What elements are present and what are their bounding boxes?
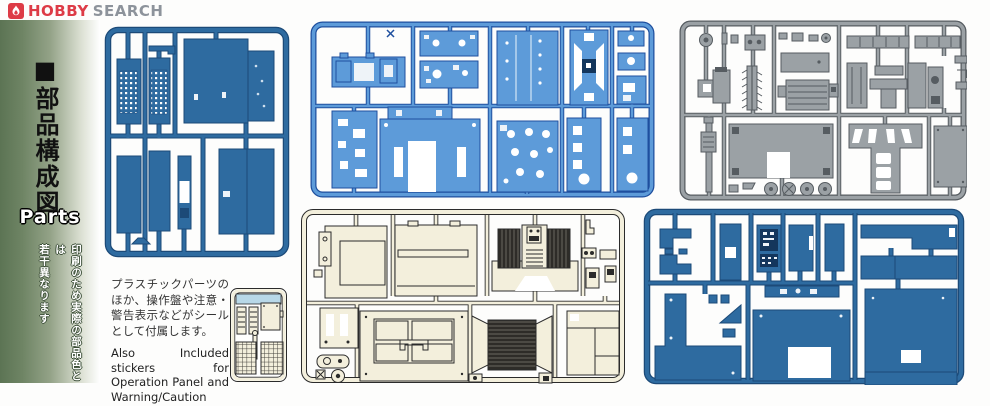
part-roof-panel [395, 221, 477, 296]
part-center-panel-with-opening [753, 310, 850, 381]
sticker-note: プラスチックパーツのほか、操作盤や注意・警告表示などがシールとして付属します。 … [111, 277, 229, 406]
part-plate-with-holes-top [420, 31, 478, 56]
parts-title-vertical: ■部品構成図 [33, 56, 57, 216]
part-h-frame [570, 30, 608, 105]
part-door-panel-1 [117, 156, 141, 233]
part-large-wall-panel [184, 39, 274, 123]
part-perforated-panel-2 [149, 46, 175, 124]
part-long-l-panel [861, 225, 957, 249]
sprue-panel-c-gray [679, 20, 967, 201]
part-narrow-panel [178, 156, 191, 229]
part-auger-screw [742, 66, 762, 110]
part-gearbox-block [698, 67, 730, 103]
part-large-side-panel [219, 149, 274, 234]
sprue-panel-b-bright-blue [310, 21, 655, 198]
part-engine-block [492, 225, 578, 291]
part-notched-plate [789, 225, 813, 271]
part-plate-with-holes-bottom [420, 61, 478, 88]
sidebar-banner: ■部品構成図 Parts 印刷のため実際の部品色とは 若干異なります [0, 20, 100, 383]
part-base-plate [729, 124, 833, 178]
sticker-note-jp: プラスチックパーツのほか、操作盤や注意・警告表示などがシールとして付属します。 [111, 277, 229, 339]
title-marker: ■ [31, 56, 59, 86]
part-small-pulleys-row [700, 33, 831, 50]
part-console-panel [360, 311, 468, 381]
part-right-panel [934, 126, 967, 187]
sticker-note-en: Also Included stickers for Operation Pan… [111, 346, 229, 406]
part-side-bracket [332, 111, 377, 188]
part-tall-panel-1 [567, 118, 601, 191]
part-long-panel-2 [861, 256, 957, 279]
sprue-panel-a-steel-blue [104, 26, 290, 258]
title-text: 部品構成図 [31, 86, 59, 216]
part-thin-bar [765, 286, 839, 297]
part-segmented-strips [847, 36, 960, 48]
sprue-panel-f-cream-small [229, 287, 288, 383]
part-a-frame-cover [849, 124, 922, 193]
part-motor-assembly [778, 53, 838, 110]
part-u-shaped-body [380, 107, 480, 192]
part-z-brackets [660, 229, 691, 274]
part-small-clips [709, 295, 729, 303]
part-large-square-panel [865, 289, 957, 385]
sprue-panel-d-cream [300, 208, 626, 384]
parts-label: Parts [0, 206, 100, 228]
part-small-fittings [617, 31, 646, 104]
site-logo: HOBBY SEARCH [8, 1, 164, 20]
flame-icon [8, 3, 24, 19]
part-frame-assembly [847, 63, 926, 108]
color-disclaimer-vertical: 印刷のため実際の部品色とは 若干異なります [36, 244, 84, 383]
part-tall-panel-window [720, 224, 741, 280]
part-rear-panel [567, 311, 619, 375]
part-undercarriage-bracket [316, 308, 358, 383]
part-control-console [757, 225, 781, 272]
sprue-panel-e-steel-blue [643, 208, 965, 385]
part-machinery-base [332, 53, 405, 87]
logo-word-hobby: HOBBY [28, 2, 89, 20]
part-long-shaft [701, 117, 716, 192]
part-door-panel-2 [149, 151, 170, 231]
part-plain-plate [825, 224, 844, 271]
part-triangle-gusset [720, 305, 741, 337]
part-plate-many-holes [497, 121, 558, 192]
sprue-gate-mark [387, 30, 394, 37]
part-radiator-grille [472, 316, 552, 373]
part-small-panel [261, 303, 283, 330]
part-perforated-panel-1 [117, 59, 141, 124]
part-tall-panel-2 [617, 118, 648, 191]
logo-word-search: SEARCH [93, 2, 164, 20]
part-cab-panel [314, 226, 387, 298]
product-image: HOBBY SEARCH ■部品構成図 Parts 印刷のため実際の部品色とは … [0, 0, 990, 406]
part-small-fittings-column [582, 220, 616, 288]
part-tall-plate [497, 31, 558, 105]
